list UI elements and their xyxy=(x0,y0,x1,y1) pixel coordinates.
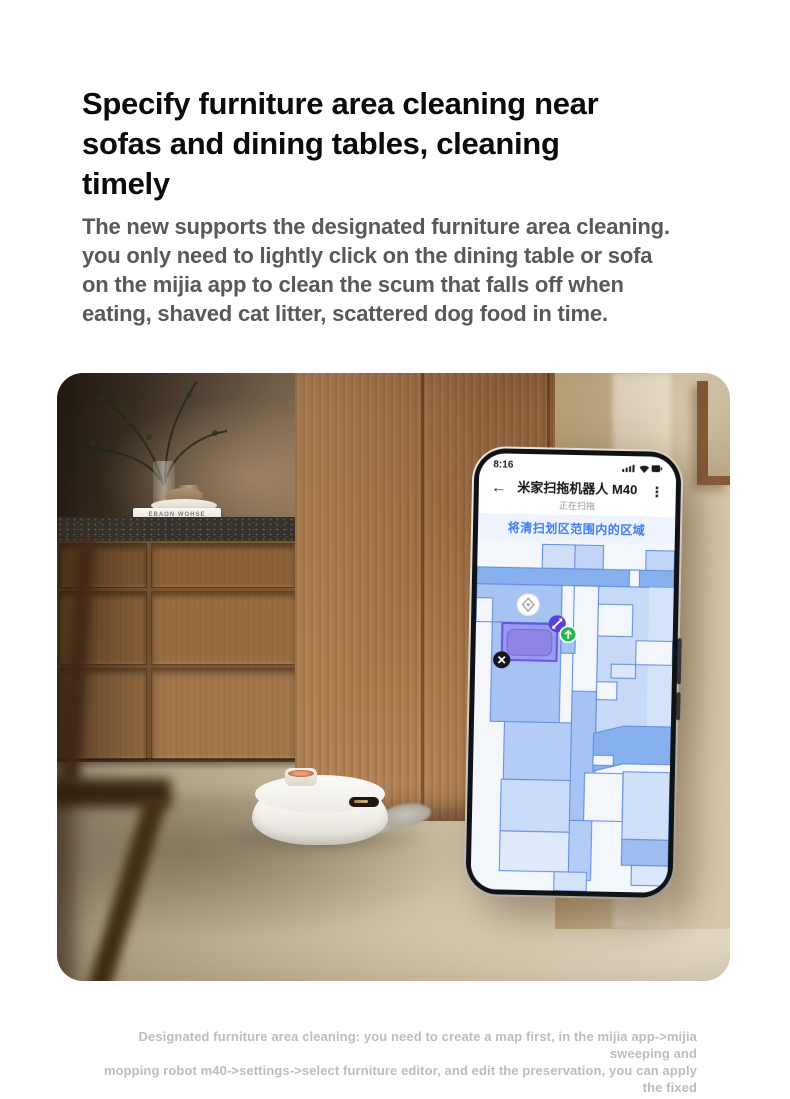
page-title-line: timely xyxy=(82,164,722,204)
description-line: on the mijia app to clean the scum that … xyxy=(82,270,730,299)
wardrobe-door-seam xyxy=(421,373,424,821)
disclaimer-line: Designated furniture area cleaning: you … xyxy=(93,1028,697,1062)
page-title: Specify furniture area cleaning near sof… xyxy=(82,84,722,204)
furniture-zone[interactable] xyxy=(502,623,558,661)
power-button[interactable] xyxy=(676,692,681,720)
cleaning-banner-text: 将清扫划区范围内的区域 xyxy=(508,519,646,539)
device-title: 米家扫拖机器人 M40 xyxy=(517,477,637,499)
app-header: ← 米家扫拖机器人 M40 正在扫拖 ⋮ xyxy=(478,473,676,517)
robot-top-cover xyxy=(255,775,385,813)
description-text: The new supports the designated furnitur… xyxy=(82,212,730,328)
description-line: you only need to lightly click on the di… xyxy=(82,241,730,270)
robot-sensor-window xyxy=(349,797,379,807)
robot-position-marker[interactable] xyxy=(560,626,577,642)
lidar-turret xyxy=(285,768,317,786)
signal-icon xyxy=(622,464,634,472)
cabinet-base-shadow xyxy=(57,758,298,770)
disclaimer-text: Designated furniture area cleaning: you … xyxy=(93,1028,697,1099)
device-status: 正在扫拖 xyxy=(559,499,595,513)
smartphone: 8:16 xyxy=(463,446,683,900)
disclaimer-line: mopping robot m40->settings->select furn… xyxy=(93,1062,697,1096)
battery-icon xyxy=(652,465,663,472)
stone-countertop xyxy=(57,517,298,541)
page-title-line: sofas and dining tables, cleaning xyxy=(82,124,722,164)
wall-art-frame xyxy=(697,381,730,485)
cleaning-banner: 将清扫划区范围内的区域 xyxy=(478,513,676,544)
more-menu-button[interactable]: ⋮ xyxy=(650,484,664,500)
back-button[interactable]: ← xyxy=(491,479,507,497)
lifestyle-photo: EBAON WOHSE xyxy=(57,373,730,981)
floor-plan xyxy=(470,540,674,893)
drawer-shading xyxy=(57,541,298,762)
status-icons xyxy=(622,462,662,473)
clock: 8:16 xyxy=(493,459,513,470)
product-page: Specify furniture area cleaning near sof… xyxy=(0,0,790,1099)
wifi-icon xyxy=(639,465,649,473)
cleaning-map[interactable] xyxy=(470,540,674,893)
description-line: The new supports the designated furnitur… xyxy=(82,212,730,241)
page-title-line: Specify furniture area cleaning near xyxy=(82,84,722,124)
phone-screen: 8:16 xyxy=(470,453,676,893)
description-line: eating, shaved cat litter, scattered dog… xyxy=(82,299,730,328)
dock-station-icon xyxy=(517,594,540,616)
drawer-cabinet xyxy=(57,541,298,762)
